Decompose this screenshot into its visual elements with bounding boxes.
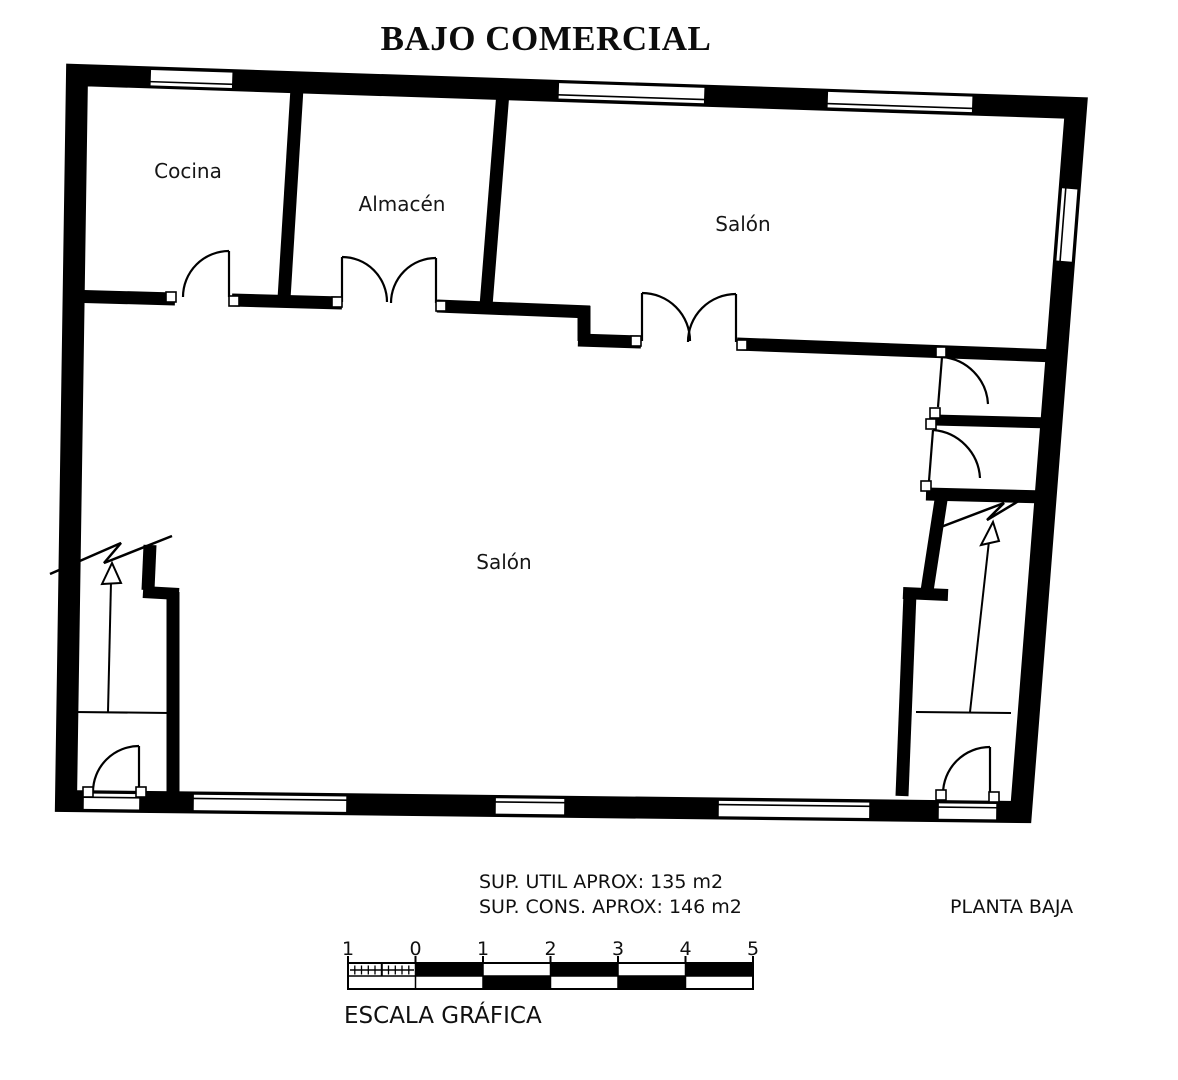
doors: [93, 251, 990, 794]
wall-h-left: [66, 296, 175, 299]
door-salon-double: [642, 293, 736, 342]
window-bottom-3: [495, 797, 565, 815]
window-bottom-4: [718, 800, 870, 819]
wall-vestibule-right-low: [902, 593, 910, 796]
wall-vestibule-right-up: [927, 500, 941, 591]
door-bath-2: [929, 430, 980, 481]
floorplan-page: 1 0 1 2 3 4 5 BAJO COMERCIAL Cocina Alma…: [0, 0, 1178, 1080]
window-bottom-5: [938, 803, 997, 821]
wall-almacen-salon: [486, 92, 503, 306]
outer-walls: [66, 75, 1076, 812]
wall-cocina-almacen: [284, 88, 297, 299]
scale-label-3: 2: [544, 938, 556, 960]
scale-label-6: 5: [747, 938, 759, 960]
room-label-cocina: Cocina: [154, 159, 222, 183]
window-top-1: [150, 69, 234, 89]
door-bath-1: [938, 357, 988, 407]
entrance-arrow-right-head: [981, 522, 999, 545]
note-sup-cons: SUP. CONS. APROX: 146 m2: [479, 896, 742, 918]
vestibule-left-line: [74, 712, 170, 713]
wall-h-right: [737, 344, 1056, 356]
entrance-arrow-left-shaft: [108, 582, 111, 712]
door-almacen-double: [342, 257, 436, 303]
page-title: BAJO COMERCIAL: [381, 19, 712, 59]
scale-label-5: 4: [679, 938, 691, 960]
wall-h-mid1: [232, 300, 342, 303]
scale-bar: 1 0 1 2 3 4 5: [342, 938, 759, 989]
vestibule-right-line: [916, 712, 1011, 713]
note-planta-baja: PLANTA BAJA: [950, 896, 1073, 918]
windows: [83, 69, 1078, 820]
door-entrance-left: [93, 746, 139, 792]
door-cocina: [183, 251, 229, 297]
door-jambs: [83, 292, 999, 802]
door-entrance-right: [943, 747, 990, 794]
scale-label-1: 0: [409, 938, 421, 960]
scale-label-4: 3: [612, 938, 624, 960]
scale-label-0: 1: [342, 938, 354, 960]
entrance-arrow-right-shaft: [970, 541, 989, 712]
interior-walls: [66, 88, 1056, 796]
room-label-salon-top: Salón: [715, 212, 770, 236]
window-bottom-2: [193, 794, 347, 813]
entrance-arrow-left-head: [102, 563, 121, 584]
note-sup-util: SUP. UTIL APROX: 135 m2: [479, 871, 723, 893]
room-label-salon-bottom: Salón: [476, 550, 531, 574]
scale-label-2: 1: [477, 938, 489, 960]
wall-vestibule-left-up: [148, 545, 150, 590]
wall-h-mid2: [437, 306, 590, 312]
wall-bath-middle: [934, 420, 1052, 423]
scale-caption: ESCALA GRÁFICA: [344, 1003, 542, 1029]
room-label-almacen: Almacén: [359, 192, 446, 216]
